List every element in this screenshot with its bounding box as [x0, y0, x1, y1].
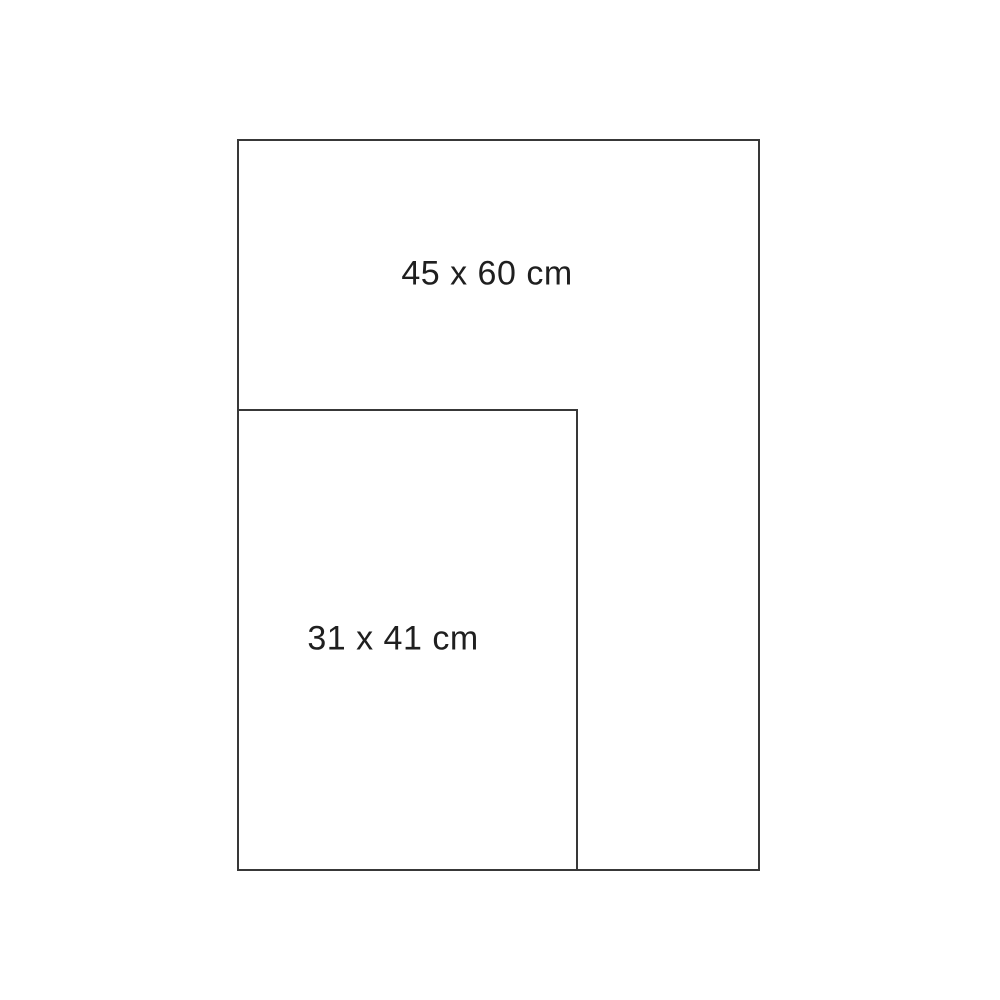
rectangle-31x41-label: 31 x 41 cm: [307, 620, 478, 659]
size-comparison-diagram: 45 x 60 cm 31 x 41 cm: [0, 0, 1000, 1000]
rectangle-45x60-label: 45 x 60 cm: [401, 255, 572, 294]
